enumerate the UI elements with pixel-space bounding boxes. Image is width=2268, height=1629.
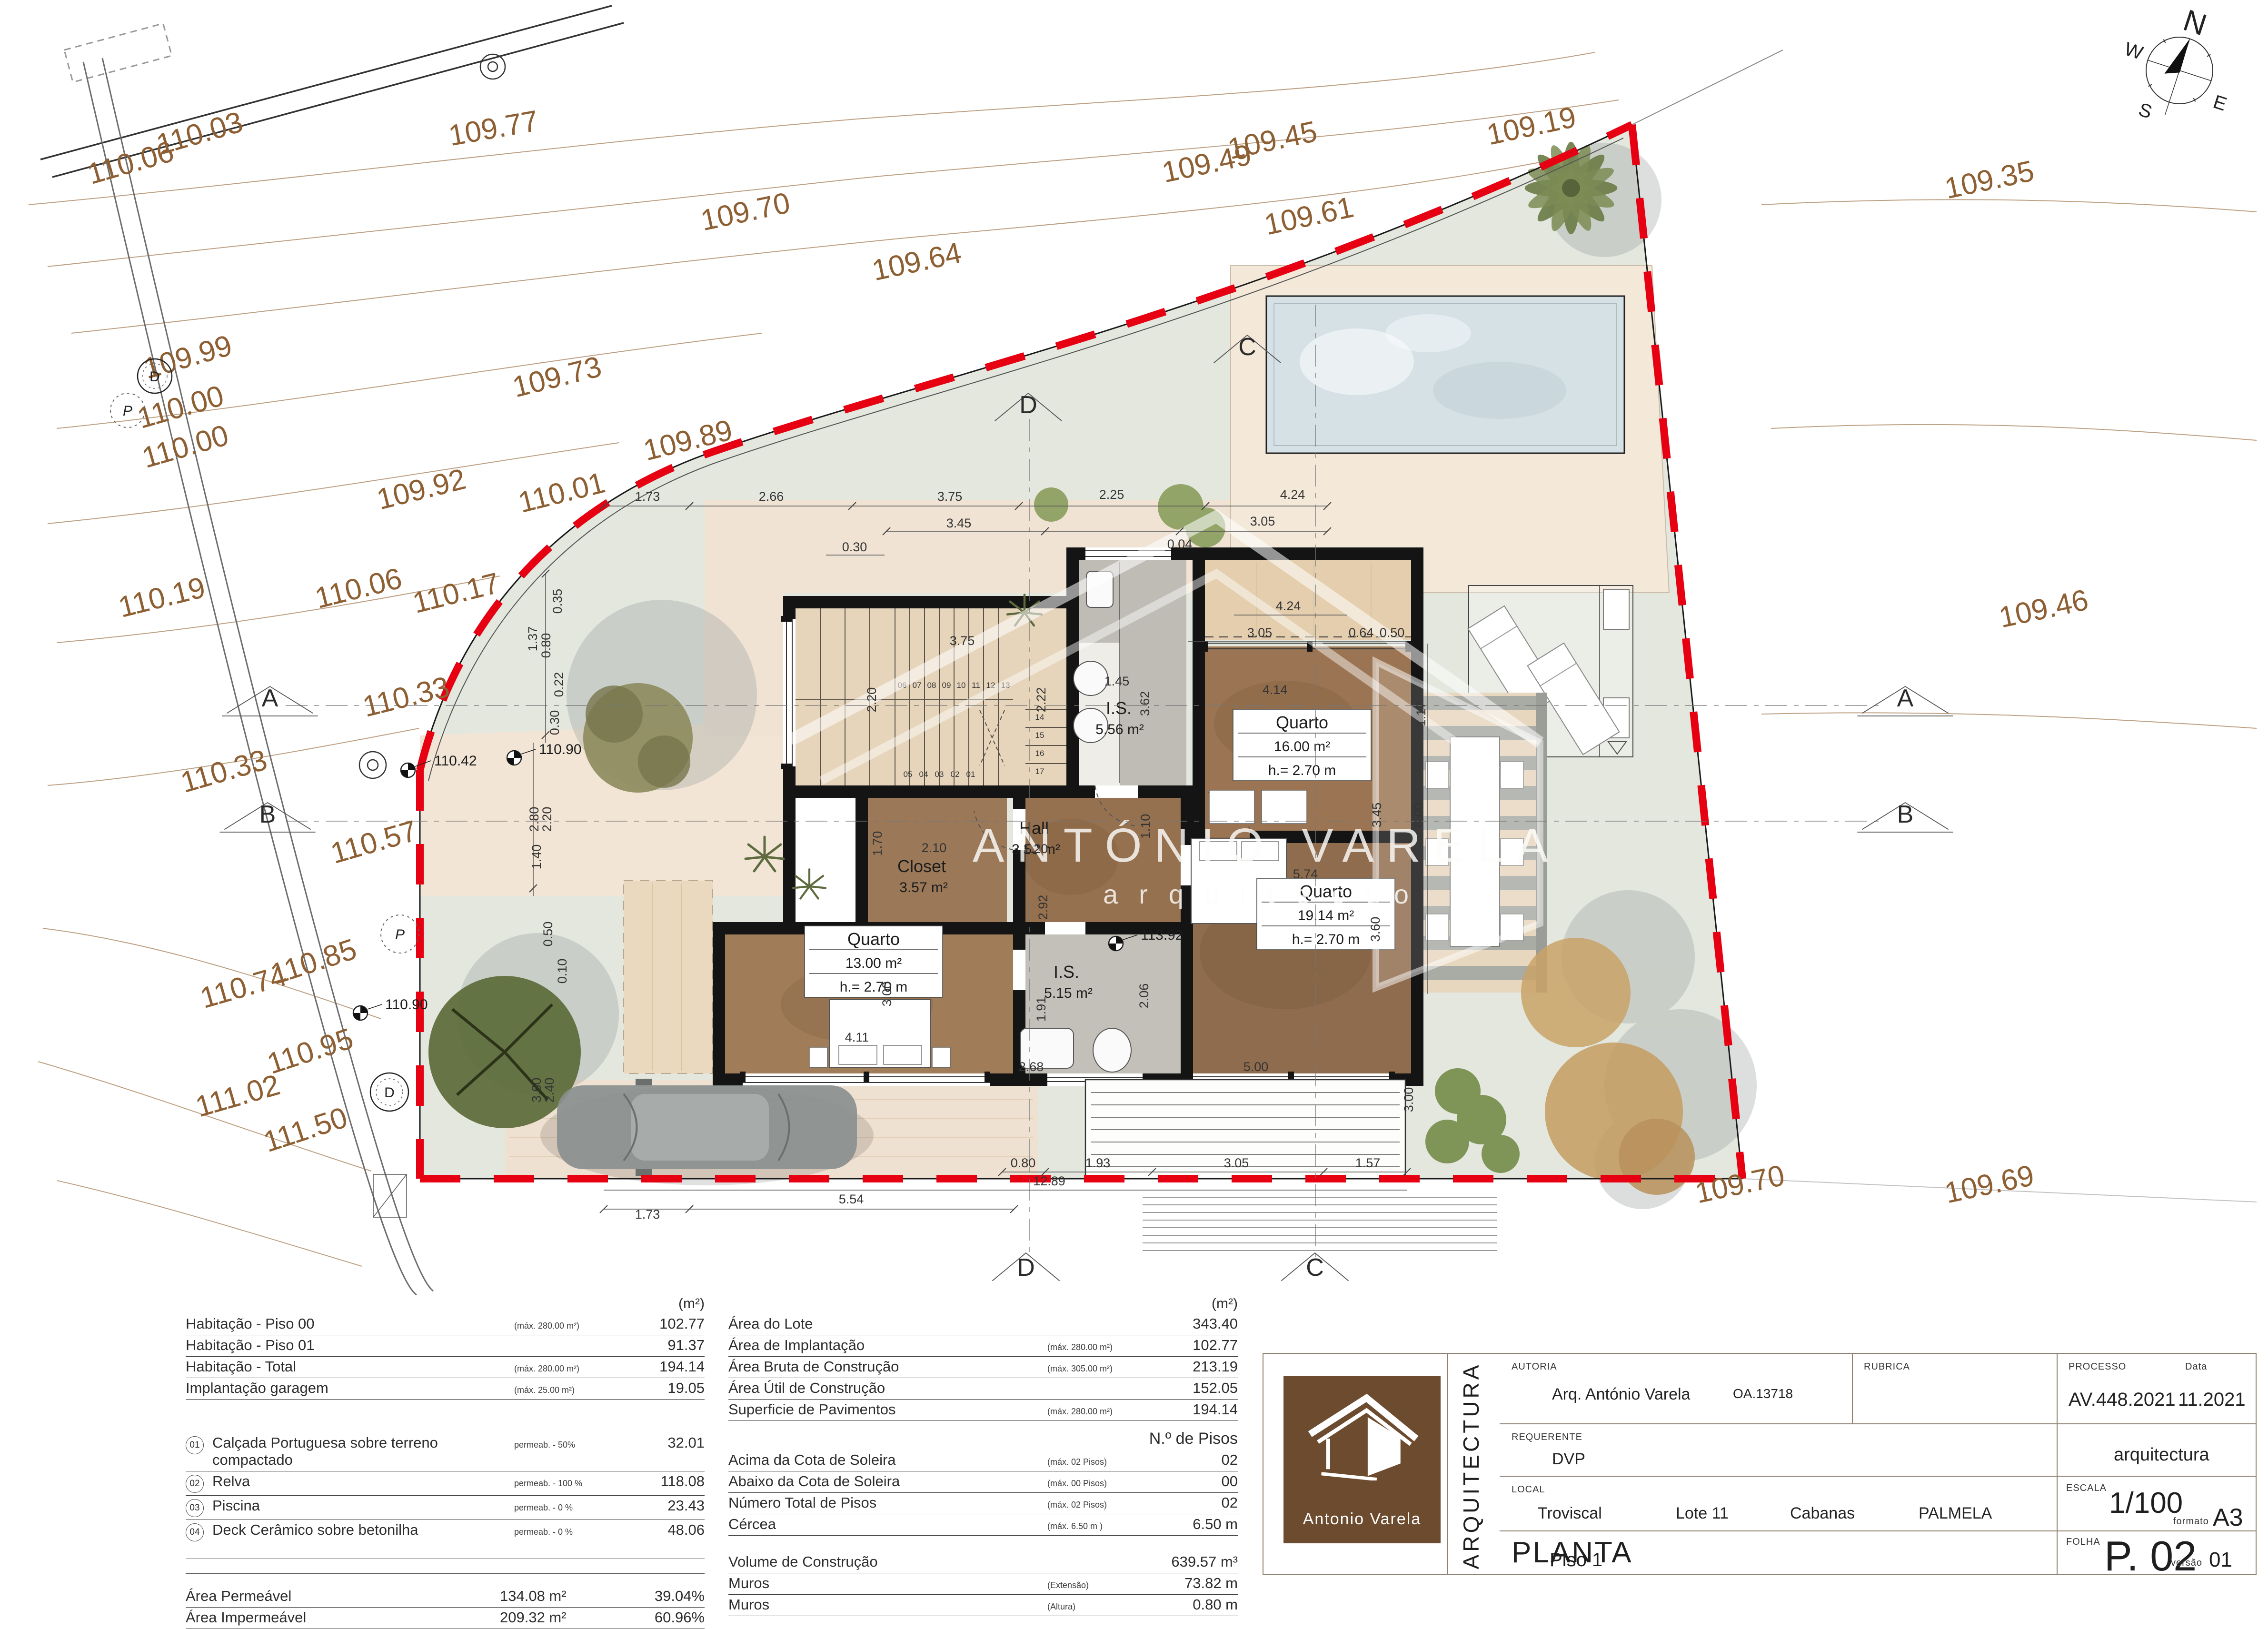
contour-label: 109.46	[1996, 583, 2091, 634]
stair-number: 08	[927, 681, 936, 690]
room-name: I.S.	[1054, 962, 1079, 982]
stair-number: 16	[1035, 749, 1044, 758]
folha-label: FOLHA	[2066, 1537, 2100, 1548]
table-row: Abaixo da Cota de Soleira(máx. 00 Pisos)…	[728, 1471, 1238, 1493]
room-height: h.= 2.70 m	[840, 979, 908, 995]
contour-label: 110.57	[327, 814, 421, 870]
table-row: Acima da Cota de Soleira(máx. 02 Pisos)0…	[728, 1450, 1238, 1471]
room-area: 16.00 m²	[1274, 739, 1330, 755]
escala-value: 1/100	[2109, 1486, 2183, 1520]
watermark-title: arquitecto	[1103, 879, 1430, 909]
road-hatch-box	[64, 23, 172, 82]
dim-label: 3.75	[950, 634, 975, 648]
section-marker-b: B	[259, 801, 276, 828]
table-row: Cércea(máx. 6.50 m )6.50 m	[728, 1514, 1238, 1536]
dim-label: 1.45	[1104, 674, 1130, 688]
dim-label: 2.20	[540, 807, 554, 832]
pool	[1266, 296, 1624, 453]
exterior-steps	[1143, 1197, 1497, 1251]
compass-west-label: W	[2122, 39, 2146, 64]
watermark-name: ANTÓNIO VARELA	[973, 819, 1561, 872]
room-area: 5.56 m²	[1095, 722, 1144, 737]
ruled-blank-row	[186, 1559, 705, 1574]
dim-label: 5.00	[1243, 1060, 1269, 1074]
contour-label: 110.19	[115, 571, 209, 624]
dim-label: 0.30	[547, 710, 562, 735]
bed	[809, 1000, 950, 1067]
room-name: Quarto	[847, 929, 900, 949]
table-row: Área Impermeável209.32 m²60.96%	[186, 1608, 705, 1629]
dim-label: 0.64	[1349, 626, 1374, 640]
folha-value: P. 02	[2104, 1532, 2197, 1580]
table-row: Implantação garagem(máx. 25.00 m²)19.05	[186, 1378, 705, 1400]
contour-label: 111.02	[192, 1068, 283, 1123]
versao-value: 01	[2209, 1548, 2232, 1572]
dim-label: 3.00	[880, 982, 894, 1007]
dim-label: 2.66	[759, 489, 784, 504]
spot-elevation: 110.90	[385, 997, 428, 1013]
stair-number: 10	[957, 681, 966, 690]
dim-label: 1.57	[1355, 1156, 1381, 1170]
dim-label: 3.62	[1138, 691, 1152, 716]
dim-label: 2.92	[1036, 895, 1050, 920]
rubrica-label: RUBRICA	[1864, 1361, 1910, 1372]
dim-label: 1.73	[635, 1207, 660, 1222]
dim-label: 3.00	[1402, 1087, 1416, 1112]
unit-header: (m²)	[186, 1296, 705, 1314]
requerente-value: DVP	[1552, 1450, 1585, 1469]
compass-needle-icon	[2164, 35, 2190, 78]
compass-rose: N E S W	[2106, 0, 2253, 144]
room-name: Quarto	[1276, 713, 1328, 732]
office-logo: Antonio Varela	[1283, 1376, 1441, 1543]
stair-number: 03	[935, 770, 944, 779]
bush	[1482, 1135, 1520, 1173]
processo-label: PROCESSO	[2069, 1361, 2126, 1372]
spot-elevation: 110.90	[539, 742, 582, 757]
table-row: Área de Implantação(máx. 280.00 m²)102.7…	[728, 1335, 1238, 1357]
dim-label: 3.05	[1250, 514, 1275, 528]
dim-label: 4.24	[1280, 487, 1305, 502]
table-row: 03Piscinapermeab. - 0 %23.43	[186, 1496, 705, 1520]
autoria-registration: OA.13718	[1733, 1386, 1793, 1401]
dim-label: 1.73	[635, 489, 660, 504]
contour-label: 110.74	[197, 959, 290, 1015]
dim-label: 1.20	[1023, 842, 1048, 856]
dim-label: 1.91	[1034, 997, 1048, 1022]
section-marker-b: B	[1897, 801, 1914, 828]
stair-number: 01	[966, 770, 975, 779]
room-height: h.= 2.70 m	[1292, 932, 1360, 947]
dim-label: 1.10	[1138, 814, 1153, 839]
house-logo-icon	[1300, 1390, 1424, 1480]
bush	[1034, 487, 1068, 522]
local-parish: Cabanas	[1790, 1504, 1855, 1523]
contour-label: 109.77	[446, 104, 541, 152]
logo-name: Antonio Varela	[1283, 1510, 1441, 1529]
dim-label: 1.37	[526, 626, 540, 652]
data-value: 11.2021	[2178, 1389, 2246, 1410]
stair-number: 11	[972, 681, 980, 690]
dim-label: 2.10	[922, 841, 947, 855]
section-marker-d: D	[1017, 1254, 1035, 1281]
contour-label: 111.50	[259, 1101, 351, 1159]
dim-label: 0.22	[552, 672, 566, 697]
table-row: 01Calçada Portuguesa sobre terreno compa…	[186, 1433, 705, 1471]
dim-label: 0.80	[539, 633, 553, 658]
room-area: 19.14 m²	[1298, 908, 1354, 924]
contour-label: 109.73	[509, 350, 605, 404]
dim-label: 3.60	[529, 1078, 544, 1103]
ruled-blank-row	[186, 1544, 705, 1559]
stair-number: 04	[919, 770, 928, 779]
compass-east-label: E	[2210, 91, 2229, 115]
stair-number: 05	[904, 770, 913, 779]
stair-number: 15	[1035, 731, 1044, 740]
room-area: 13.00 m²	[846, 955, 902, 971]
autumn-tree	[1521, 938, 1631, 1047]
dim-label: 3.05	[1247, 626, 1273, 640]
table-row: Muros(Extensão)73.82 m	[728, 1573, 1238, 1595]
svg-text:P: P	[395, 927, 405, 943]
dim-label: 1.70	[870, 831, 885, 856]
dim-label: 1.93	[1085, 1156, 1111, 1170]
contour-label: 110.95	[263, 1022, 357, 1081]
table-row: 04Deck Cerâmico sobre betonilhapermeab. …	[186, 1520, 705, 1544]
escala-label: ESCALA	[2066, 1483, 2107, 1494]
lot-area-table: (m²) Área do Lote343.40 Área de Implanta…	[728, 1296, 1238, 1616]
utility-p-icon: P	[381, 915, 419, 953]
table-row: Área Permeável134.08 m²39.04%	[186, 1586, 705, 1608]
compass-north-label: N	[2179, 3, 2211, 42]
compass-south-label: S	[2136, 99, 2155, 123]
stair-number: 09	[942, 681, 951, 690]
data-label: Data	[2185, 1361, 2207, 1372]
table-row: Muros(Altura)0.80 m	[728, 1595, 1238, 1616]
dim-label: 12.89	[1033, 1174, 1065, 1188]
section-marker-a: A	[1897, 685, 1914, 712]
dim-label: 0.35	[550, 589, 565, 614]
dim-label: 2.06	[1137, 983, 1151, 1009]
dim-label: 3.05	[1224, 1156, 1249, 1170]
dim-label: 4.24	[1276, 599, 1301, 613]
table-row: Área do Lote343.40	[728, 1314, 1238, 1335]
room-name: Closet	[897, 856, 946, 876]
dim-label: 5.54	[839, 1192, 864, 1206]
dim-label: 3.45	[946, 516, 972, 530]
stair-number: 17	[1035, 767, 1044, 776]
dim-label: 2.22	[1034, 687, 1048, 713]
contour-label: 109.69	[1942, 1159, 2037, 1210]
table-row: Área Útil de Construção152.05	[728, 1378, 1238, 1400]
dim-label: 3.75	[937, 489, 963, 504]
table-row: Área Bruta de Construção(máx. 305.00 m²)…	[728, 1357, 1238, 1378]
dim-label: 1.40	[529, 844, 544, 870]
dim-label: 0.80	[1011, 1156, 1036, 1170]
local-lot: Lote 11	[1676, 1504, 1729, 1523]
unit-header: (m²)	[728, 1296, 1238, 1314]
autoria-label: AUTORIA	[1512, 1361, 1557, 1372]
room-label-box: Quarto 16.00 m² h.= 2.70 m	[1233, 709, 1371, 781]
dim-label: 2.40	[542, 1078, 557, 1103]
utility-d-icon: D	[370, 1073, 408, 1111]
autoria-value: Arq. António Varela	[1552, 1385, 1690, 1404]
processo-value: AV.448.2021	[2069, 1389, 2176, 1410]
room-label-box: Quarto 13.00 m² h.= 2.70 m	[805, 926, 943, 997]
dim-label: 3.45	[1370, 803, 1384, 828]
svg-text:D: D	[384, 1085, 395, 1101]
autumn-tree	[1619, 1119, 1695, 1195]
room-name: I.S.	[1106, 698, 1132, 718]
dim-label: 0.30	[842, 540, 867, 554]
contour-label: 109.92	[374, 463, 469, 517]
table-row: Habitação - Piso 0191.37	[186, 1335, 705, 1357]
dim-label: 4.11	[845, 1030, 869, 1044]
contour-label: 109.61	[1262, 190, 1357, 241]
room-area: 5.15 m²	[1044, 985, 1093, 1001]
habitacao-area-table: (m²) Habitação - Piso 00(máx. 280.00 m²)…	[186, 1296, 705, 1629]
spot-elevation: 113.92	[1141, 927, 1184, 943]
local-town: Troviscal	[1538, 1504, 1602, 1523]
contour-label: 109.35	[1942, 154, 2037, 205]
dim-label: 0.50	[541, 922, 555, 947]
discipline-small: arquitectura	[2114, 1445, 2209, 1465]
versao-label: versão	[2171, 1558, 2202, 1569]
room-area: 3.57 m²	[899, 880, 948, 895]
drawing-subtitle: Piso 1	[1550, 1550, 1602, 1571]
dim-label: 2.80	[527, 807, 541, 832]
dim-label: 3.60	[1368, 917, 1383, 942]
formato-value: A3	[2213, 1503, 2243, 1532]
room-height: h.= 2.70 m	[1268, 763, 1336, 778]
dim-label: 8.00	[1411, 803, 1425, 828]
section-marker-c: C	[1306, 1254, 1324, 1281]
table-row: Habitação - Piso 00(máx. 280.00 m²)102.7…	[186, 1314, 705, 1335]
spot-elevation: 110.42	[434, 753, 477, 769]
dim-label: 0.10	[555, 959, 569, 984]
dim-label: 2.25	[1099, 487, 1124, 502]
dim-label: 2.68	[1019, 1060, 1044, 1074]
section-marker-a: A	[262, 685, 279, 712]
contour-label: 109.45	[1225, 115, 1320, 166]
svg-text:D: D	[149, 369, 160, 385]
car	[540, 1079, 874, 1185]
contour-label: 109.64	[869, 236, 965, 287]
dim-label: 0.04	[1167, 537, 1193, 551]
utility-box	[373, 1174, 407, 1217]
floors-header: N.º de Pisos	[728, 1421, 1238, 1450]
requerente-label: REQUERENTE	[1512, 1432, 1582, 1443]
contour-label: 110.33	[177, 744, 271, 799]
manhole-icon	[359, 752, 386, 778]
drawing-sheet: 01 02 03 04 05 06 07 08 09 10 11 12 13 1…	[0, 0, 2268, 1577]
section-marker-c: C	[1238, 333, 1256, 361]
bush	[1425, 1120, 1469, 1163]
table-row: Superficie de Pavimentos(máx. 280.00 m²)…	[728, 1400, 1238, 1421]
formato-label: formato	[2173, 1516, 2209, 1527]
section-marker-d: D	[1019, 391, 1037, 419]
dim-label: 2.20	[865, 687, 879, 713]
dim-label: 4.14	[1263, 683, 1288, 697]
local-label: LOCAL	[1512, 1484, 1545, 1495]
dim-label: 5.74	[1293, 867, 1318, 881]
contour-label: 109.19	[1484, 100, 1579, 151]
table-row: Volume de Construção639.57 m³	[728, 1552, 1238, 1573]
table-row: Habitação - Total(máx. 280.00 m²)194.14	[186, 1357, 705, 1378]
svg-text:P: P	[123, 403, 132, 419]
discipline-vertical-label: ARQUITECTURA	[1458, 1361, 1484, 1570]
dim-label: 0.50	[1380, 626, 1405, 640]
table-row: Número Total de Pisos(máx. 02 Pisos)02	[728, 1493, 1238, 1514]
stair-number: 14	[1035, 713, 1044, 722]
stair-number: 02	[951, 770, 960, 779]
dim-label: 1.17	[1414, 702, 1428, 727]
contour-label: 110.06	[312, 562, 405, 615]
local-municipality: PALMELA	[1919, 1504, 1992, 1523]
table-row: 02Relvapermeab. - 100 %118.08	[186, 1471, 705, 1496]
